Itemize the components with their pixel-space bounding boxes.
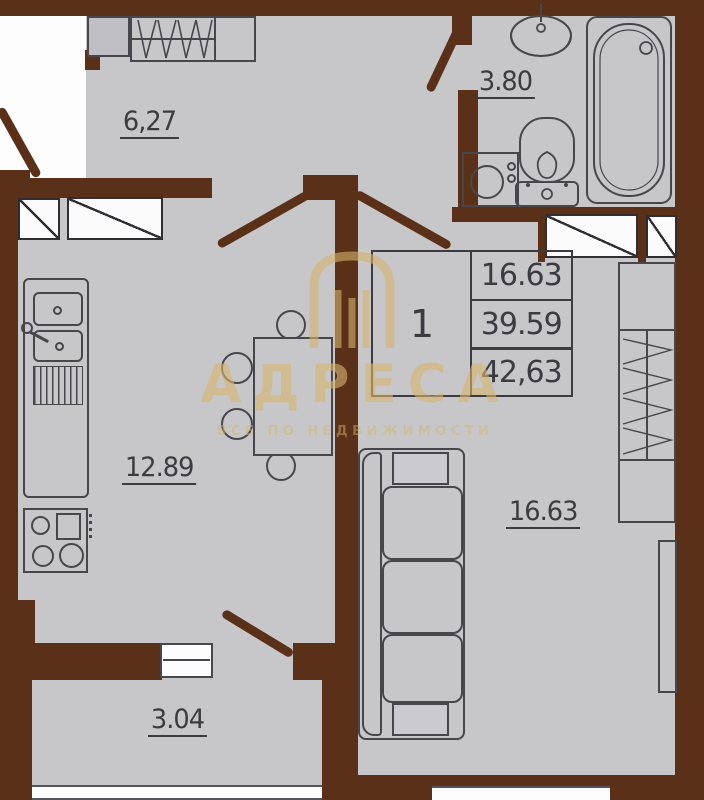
kitchen-counter-sink	[23, 278, 89, 498]
wall-top	[0, 0, 704, 16]
wall-center-pillar	[303, 175, 358, 200]
balcony-window	[32, 785, 322, 800]
hall-closet	[130, 16, 256, 62]
closet-hangers-icon	[132, 18, 254, 60]
wardrobe-wide	[67, 197, 163, 240]
oven-zone	[56, 513, 81, 540]
stove-knobs	[89, 514, 92, 538]
sink-drain-bottom	[55, 342, 64, 351]
sofa-cushion-2	[382, 560, 463, 634]
sofa-cushion-3	[382, 634, 463, 703]
wall-living-bottom-right	[610, 775, 704, 800]
living-room-door	[354, 190, 453, 251]
stove-icon	[23, 508, 88, 573]
sofa	[358, 448, 465, 740]
sink-drain-top	[53, 306, 62, 315]
washer-knob-2	[507, 174, 516, 183]
watermark-logo-icon	[302, 248, 402, 352]
chair-left-1	[221, 352, 253, 384]
wall-left-mid	[0, 200, 18, 600]
washing-machine-icon	[462, 152, 519, 207]
wall-balcony-right	[322, 680, 358, 800]
area-label-hallway: 6,27	[120, 108, 179, 139]
sideboard	[658, 540, 677, 693]
info-living-area: 16.63	[470, 250, 574, 301]
sofa-armrest-bottom	[392, 703, 449, 736]
living-cabinet-narrow	[646, 215, 677, 258]
wall-hallway-bottom	[0, 178, 212, 198]
balcony-door	[221, 609, 295, 659]
wall-balcony-pillar	[293, 643, 358, 680]
wardrobe-small	[18, 198, 60, 240]
sofa-armrest-top	[392, 452, 449, 485]
floor-plan: 6,27 3.80 12.89 16.63 3.04 1 16.63 39.59…	[0, 0, 704, 800]
info-area: 39.59	[470, 299, 574, 350]
wall-left-balcony	[0, 680, 32, 800]
living-wardrobe	[618, 262, 676, 523]
bathtub-icon	[586, 16, 672, 204]
burner-right	[59, 543, 84, 568]
dining-table	[253, 337, 333, 456]
kitchen-door	[216, 191, 310, 250]
drying-rack-icon	[33, 366, 83, 405]
burner-small	[31, 516, 50, 535]
living-window	[432, 786, 610, 800]
wall-cabinet-spacer-mid	[638, 222, 646, 262]
entrance-niche	[28, 16, 86, 178]
burner-left	[32, 545, 54, 567]
area-label-kitchen: 12.89	[122, 454, 196, 485]
wall-right	[675, 0, 704, 800]
wall-living-bottom-sill	[432, 775, 610, 786]
kitchen-balcony-window-mullion	[163, 659, 210, 661]
area-label-balcony: 3.04	[148, 706, 207, 737]
wardrobe-hangers-icon	[620, 264, 674, 521]
sofa-back	[362, 452, 382, 736]
wall-balcony-top	[18, 643, 162, 680]
sofa-cushion-1	[382, 486, 463, 560]
toilet-icon	[514, 116, 580, 208]
area-label-bathroom: 3.80	[476, 68, 535, 99]
washer-knob-1	[507, 162, 516, 171]
bathroom-door	[425, 20, 466, 94]
wall-living-bottom-left	[355, 775, 432, 800]
info-total-area: 42,63	[470, 347, 574, 397]
washer-drum	[470, 165, 504, 199]
area-label-living: 16.63	[506, 498, 580, 529]
chair-left-2	[221, 408, 253, 440]
hall-cabinet	[87, 16, 130, 57]
bath-sink-icon	[506, 2, 576, 60]
